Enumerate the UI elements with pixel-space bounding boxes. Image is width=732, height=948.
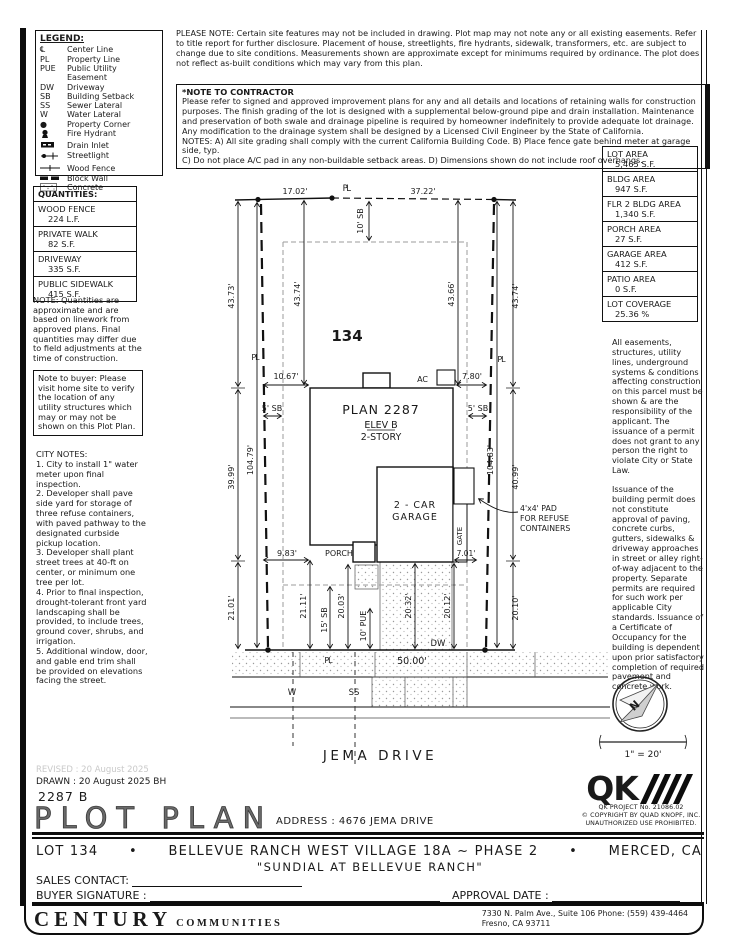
qk-logo-text: QK (586, 773, 638, 804)
porch-label: PORCH (325, 549, 353, 558)
sales-contact-label: SALES CONTACT: (36, 874, 129, 887)
dim-top-right: 37.22' (410, 187, 435, 196)
lot-community-row: LOT 134 • BELLEVUE RANCH WEST VILLAGE 18… (36, 844, 702, 859)
dim-left-outer-bot: 21.01' (227, 595, 236, 620)
dim-top-left: 17.02' (282, 187, 307, 196)
pue-symbol: PUE (40, 64, 67, 73)
property-corner (265, 647, 271, 653)
plan-elevation: ELEV B (364, 420, 397, 431)
dim-right-outer-bot: 20.10' (511, 595, 520, 620)
title-divider (32, 832, 704, 839)
sheet-title: PLOT PLAN (34, 801, 273, 835)
drain-inlet-icon (40, 141, 67, 151)
buyer-signature-label: BUYER SIGNATURE : (36, 889, 147, 902)
buyer-signature-line (150, 891, 440, 902)
plan-stories: 2-STORY (361, 432, 402, 443)
qk-logo-block: QK QK PROJECT No. 21086.02 © COPYRIGHT B… (576, 770, 706, 829)
city-notes-body: 1. City to install 1" water meter upon f… (36, 460, 148, 686)
city-notes: CITY NOTES: 1. City to install 1" water … (36, 450, 148, 686)
dim-drive-a: 20.32' (404, 593, 413, 618)
property-line-symbol: PL (40, 55, 67, 64)
qk-logo: QK (576, 770, 706, 804)
driveway-symbol: DW (40, 83, 67, 92)
north-arrow-and-scale: N 1" = 20' (596, 664, 700, 760)
street-name: JEMA DRIVE (322, 748, 437, 764)
ac-label: AC (417, 375, 428, 384)
legend-item: Block Wall (40, 174, 158, 183)
quantity-row: DRIVEWAY335 S.F. (34, 251, 136, 276)
quantities-title: QUANTITIES: (34, 187, 136, 201)
legend-item: ℄Center Line (40, 45, 158, 54)
legend-item: Drain Inlet (40, 141, 158, 151)
bullet-icon: • (569, 844, 578, 859)
garage-label-1: 2 - CAR (394, 500, 436, 511)
drawn-date: DRAWN : 20 August 2025 BH (36, 777, 166, 787)
dim-gate-width: 7.01' (457, 549, 476, 558)
wood-fence-icon (40, 164, 67, 174)
legend-item: PUEPublic Utility Easement (40, 64, 158, 83)
house-outline (310, 370, 474, 562)
quantity-row: PRIVATE WALK82 S.F. (34, 226, 136, 251)
side-notes: All easements, structures, utility lines… (612, 338, 704, 701)
legend-item: ●Property Corner (40, 120, 158, 129)
dim-side-setback-right: 5' SB (468, 404, 488, 413)
community-subtitle: "SUNDIAL AT BELLEVUE RANCH" (150, 860, 590, 874)
dim-right-inner-full: 104.83' (486, 445, 495, 475)
ac-pad (437, 370, 455, 385)
left-property-line (261, 204, 268, 648)
dim-side-setback-left: 5' SB (262, 404, 282, 413)
legend-item: Streetlight (40, 151, 158, 163)
refuse-note-3: CONTAINERS (520, 524, 570, 533)
revised-date: REVISED : 20 August 2025 (36, 765, 149, 775)
dim-right-outer-mid: 40.99' (511, 464, 520, 489)
gate-label: GATE (456, 527, 464, 545)
qk-use-note: UNAUTHORIZED USE PROHIBITED. (576, 820, 706, 828)
builder-name: CENTURY (34, 907, 172, 931)
qk-stripes-icon (640, 770, 696, 804)
dim-frontage: 50.00' (397, 656, 427, 667)
legend-box: LEGEND: ℄Center Line PLProperty Line PUE… (35, 30, 163, 176)
quantity-row: WOOD FENCE224 L.F. (34, 201, 136, 226)
dim-rear-left-width: 9.83' (277, 549, 297, 558)
dim-right-outer-top: 43.74' (511, 283, 520, 308)
dim-left-outer-top: 43.73' (227, 283, 236, 308)
permits-note: Issuance of the building permit does not… (612, 485, 704, 692)
buyer-signature-row: BUYER SIGNATURE : (36, 889, 440, 902)
porch-footprint (353, 542, 375, 562)
approval-date-line (552, 891, 680, 902)
dim-rear-setback: 15' SB (320, 607, 329, 633)
refuse-pad (454, 468, 474, 504)
dim-left-rear: 21.11' (299, 593, 308, 618)
approval-date-label: APPROVAL DATE : (452, 889, 549, 902)
site-address: ADDRESS : 4676 JEMA DRIVE (276, 816, 434, 827)
property-corner (491, 197, 496, 202)
community-label: BELLEVUE RANCH WEST VILLAGE 18A ~ PHASE … (169, 844, 539, 859)
please-note: PLEASE NOTE: Certain site features may n… (176, 28, 700, 68)
sales-contact-line (132, 876, 302, 887)
city-label: MERCED, CA (609, 844, 702, 859)
refuse-note-2: FOR REFUSE (520, 514, 569, 523)
legend-title: LEGEND: (40, 34, 158, 44)
qk-copyright: © COPYRIGHT BY QUAD KNOPF, INC. (576, 812, 706, 820)
legend-item: Fire Hydrant (40, 129, 158, 141)
dim-right-gap: 7.80' (462, 372, 482, 381)
fireplace-bump (363, 373, 390, 388)
lot-label: LOT 134 (36, 844, 98, 859)
legend-item: PLProperty Line (40, 55, 158, 64)
scale-label: 1" = 20' (624, 750, 661, 760)
buyer-note-box: Note to buyer: Please visit home site to… (33, 370, 143, 436)
builder-address: 7330 N. Palm Ave., Suite 106 Phone: (559… (482, 909, 688, 929)
garage-label-2: GARAGE (392, 512, 438, 523)
dw-label: DW (431, 639, 447, 649)
site-plan-drawing: 17.02' PL 37.22' 10' SB 43.73' 43.74' 43… (175, 158, 620, 770)
builder-logo: CENTURYCOMMUNITIES (34, 907, 282, 932)
pl-label-right: PL (497, 355, 506, 364)
block-wall-icon (40, 174, 67, 183)
dim-right-inner-top: 43.66' (447, 281, 456, 306)
plot-plan-sheet: LEGEND: ℄Center Line PLProperty Line PUE… (0, 0, 732, 948)
quantities-note: NOTE: Quantities are approximate and are… (33, 296, 143, 364)
refuse-note-1: 4'x4' PAD (520, 504, 557, 513)
lot-number: 134 (331, 327, 362, 345)
approval-date-row: APPROVAL DATE : (452, 889, 680, 902)
setback-symbol: SB (40, 92, 67, 101)
dim-left-gap: 10.67' (273, 372, 298, 381)
sewer-lateral-label: SS (349, 688, 360, 698)
streetlight-icon (40, 151, 67, 163)
legend-item: Wood Fence (40, 164, 158, 174)
dim-left-inner-top: 43.74' (293, 281, 302, 306)
legend-item: WWater Lateral (40, 110, 158, 119)
driveway (380, 562, 452, 650)
legend-item: SBBuilding Setback (40, 92, 158, 101)
property-corner (329, 195, 334, 200)
dim-front-setback: 10' SB (356, 208, 365, 234)
legend-item: SSSewer Lateral (40, 101, 158, 110)
centerline-symbol: ℄ (40, 45, 67, 54)
dim-pue: 10' PUE (359, 611, 368, 642)
bullet-icon: • (129, 844, 138, 859)
pl-label-left: PL (251, 353, 260, 362)
page-left-border (20, 28, 26, 906)
pl-label-top: PL (343, 184, 352, 194)
dim-left-outer-mid: 39.99' (227, 464, 236, 489)
legend-item: DWDriveway (40, 83, 158, 92)
sales-contact-row: SALES CONTACT: (36, 874, 302, 887)
property-corner (255, 197, 260, 202)
builder-sub-name: COMMUNITIES (176, 918, 282, 929)
easements-note: All easements, structures, utility lines… (612, 338, 704, 476)
builder-bar: CENTURYCOMMUNITIES 7330 N. Palm Ave., Su… (24, 905, 704, 935)
refuse-leader-arrow (479, 499, 518, 512)
dim-walk-depth: 20.03' (337, 593, 346, 618)
property-corner (482, 647, 488, 653)
dim-drive-b: 20.12' (443, 593, 452, 618)
sewer-symbol: SS (40, 101, 67, 110)
plan-name: PLAN 2287 (342, 402, 419, 417)
water-lateral-label: W (288, 688, 297, 698)
water-symbol: W (40, 110, 67, 119)
dim-left-inner-full: 104.79' (246, 445, 255, 475)
quantities-table: QUANTITIES: WOOD FENCE224 L.F. PRIVATE W… (33, 186, 137, 302)
property-corner-icon: ● (40, 120, 67, 129)
fire-hydrant-icon (40, 129, 67, 141)
right-property-line (486, 204, 494, 648)
